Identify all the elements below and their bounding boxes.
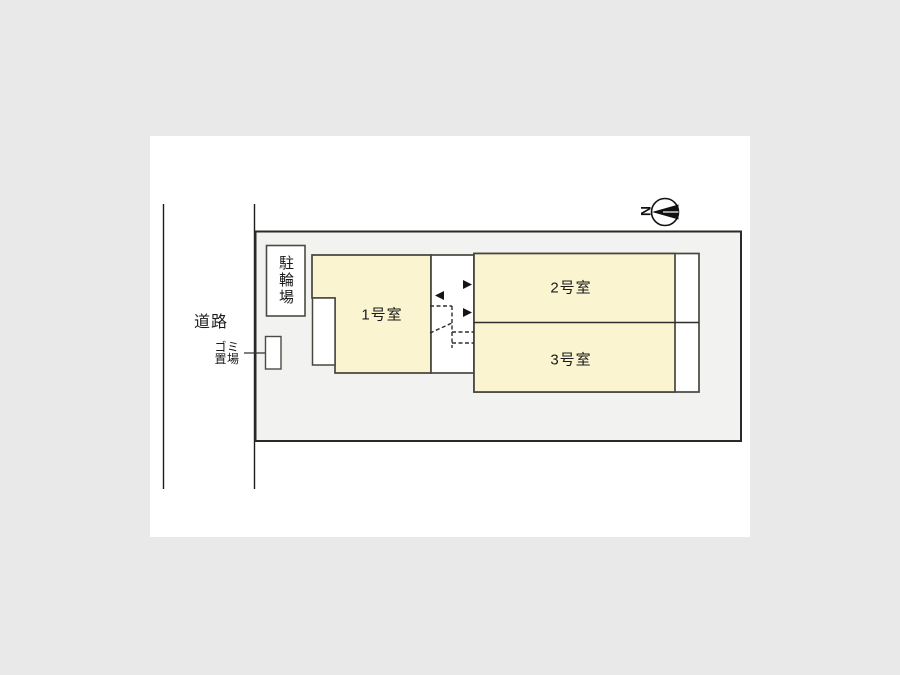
site-plan-drawing <box>0 0 900 675</box>
bicycle-parking-label: 駐輪場 <box>275 255 296 306</box>
compass-north-letter: N <box>637 202 655 220</box>
road-label: 道路 <box>194 308 228 332</box>
site-plan-canvas: 道路 ゴミ 置場 駐輪場 1号室 2号室 3号室 N <box>0 0 900 675</box>
north-arrow-icon <box>652 199 679 226</box>
room-1-porch <box>313 298 336 365</box>
garbage-box <box>266 337 282 370</box>
garbage-area-label-line2: 置場 <box>214 353 239 365</box>
garbage-area-label: ゴミ 置場 <box>214 341 239 365</box>
room-2-label: 2号室 <box>550 277 591 298</box>
room-3-label: 3号室 <box>550 349 591 370</box>
bicycle-parking-label-wrap: 駐輪場 <box>266 245 305 316</box>
room-1-label: 1号室 <box>361 304 402 325</box>
